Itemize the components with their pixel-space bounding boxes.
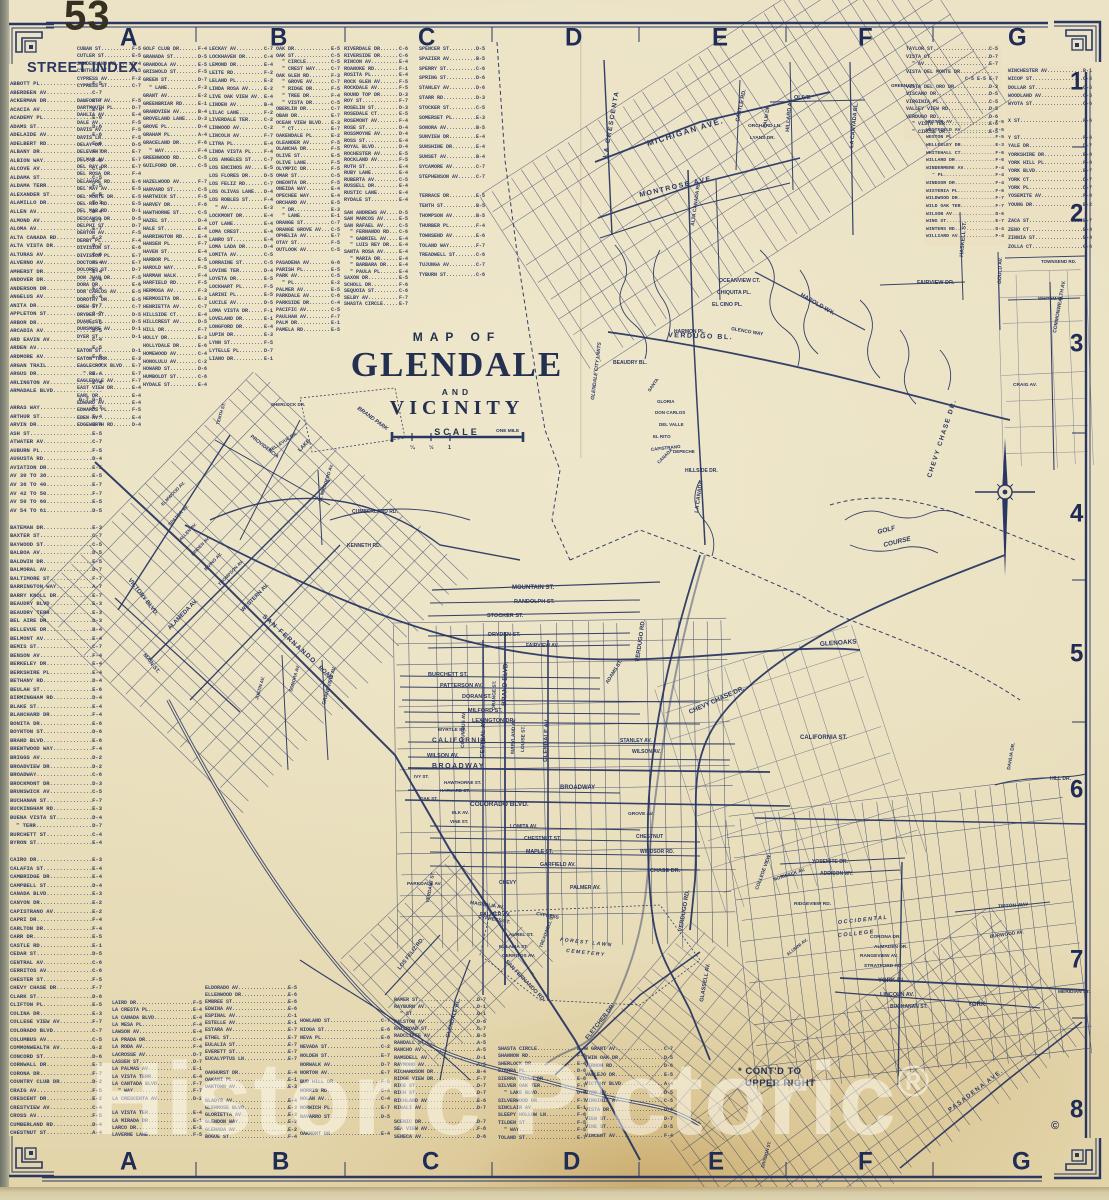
road (400, 687, 600, 689)
road (830, 498, 1075, 560)
street-label: FAIRVIEW AV. (526, 643, 559, 649)
index-entry: DESCANSO DR..........................D-5 (77, 216, 141, 223)
street-label: OLIVE (794, 95, 811, 101)
index-entry: LYNN ST..........................F-5 (209, 340, 273, 348)
street-label: CALIFORNIA (432, 737, 487, 744)
street-label: BEAUDRY BL. (613, 360, 648, 366)
index-entry: EDEN AV..........................E-4 (77, 415, 141, 422)
index-entry: BUENA VISTA ST..........................… (10, 814, 102, 823)
index-entry: HARMAN WALK..........................F-4 (143, 273, 207, 281)
index-entry: BRIGGS AV..........................D-2 (10, 754, 102, 763)
index-entry: HARBOR PL..........................E-5 (143, 257, 207, 265)
index-entry: WILLARD DR..........................F-6 (926, 158, 1004, 166)
index-entry: CRESTVIEW AV..........................C-… (10, 1104, 102, 1113)
street-label: GLORIA (657, 399, 675, 404)
index-entry: LAIRD DR..........................F-5 (112, 1000, 202, 1007)
index-entry: DOCTORS AV..........................E-7 (77, 260, 141, 267)
street-label: HILL DR. (1050, 776, 1072, 782)
index-entry: BRUNSWICK AV..........................C-… (10, 788, 102, 797)
index-entry: LINDEN AV..........................B-4 (209, 102, 273, 110)
index-entry: CHESTER ST..........................F-5 (10, 976, 102, 985)
street-label: GLENCO WAY (731, 326, 765, 338)
index-entry: DUNSMORE AV..........................D-1 (77, 326, 141, 333)
street-label: WILSON AV. (427, 753, 459, 759)
index-entry: CENTRAL AV..........................C-6 (10, 959, 102, 968)
index-entry: DENTON AV..........................F-5 (77, 230, 141, 237)
index-entry: AUBURN PL..........................F-5 (10, 447, 102, 456)
index-entry: DIVISION PL..........................E-7 (77, 253, 141, 260)
index-entry: HARTWICK ST..........................F-5 (143, 194, 207, 202)
index-entry: " CIRCLE..........................C-5 (276, 59, 340, 66)
scan-edge-bottom (0, 1187, 1109, 1200)
road (428, 633, 630, 636)
map-title-line3: AND (348, 387, 566, 397)
grid-letter-top-B: B (270, 23, 287, 52)
street-label: ALUMNI AV. (786, 937, 809, 957)
index-entry: AV 54 TO 61..........................D-5 (10, 507, 102, 516)
street-label: DORAN ST. (462, 694, 492, 700)
index-entry: OCEAN VIEW BLVD.........................… (276, 120, 340, 127)
index-entry: PAULHAN AV..........................F-7 (276, 314, 340, 321)
index-entry: HALE ST..........................E-4 (143, 226, 207, 234)
street-label: VERDUGO RD. (678, 889, 691, 932)
street-label: SANTA (647, 377, 660, 393)
street-index-title: STREET INDEX (27, 60, 139, 76)
index-entry: ORANGE GROVE AV.........................… (276, 227, 340, 234)
index-entry: EDWARD AV..........................E-4 (77, 400, 141, 407)
index-entry: TERRACE DR..........................E-5 (419, 193, 485, 203)
street-label: OAK ST. (420, 796, 438, 801)
grid-number-3: 3 (1070, 329, 1083, 358)
street-label: RANDOLPH ST. (514, 599, 555, 605)
index-entry: OAK GLEN RD..........................F-3 (276, 73, 340, 80)
index-entry: DREW ST..........................C-7 (77, 304, 141, 311)
index-entry: GREEN ST..........................D-7 (143, 77, 207, 85)
index-entry: SUNVIEW DR..........................E-4 (419, 134, 485, 144)
index-entry: CARLTON DR..........................F-4 (10, 925, 102, 934)
index-entry: " DR..........................E-3 (276, 207, 340, 214)
index-entry: WELLESLEY DR..........................E-… (926, 143, 1004, 151)
street-label: CHESTNUT (636, 834, 663, 840)
index-entry: SPRING ST..........................D-6 (419, 75, 485, 85)
index-entry: WESTFIELD AV..........................F-… (926, 128, 1004, 136)
street-label: IVY ST. (414, 774, 429, 779)
index-entry: C-5 E-5 E-7 (906, 76, 998, 84)
index-entry: BIRMINGHAM RD..........................D… (10, 694, 102, 703)
index-entry: CAIRO DR..........................E-3 (10, 856, 102, 865)
index-entry: GUILFORD DR..........................C-5 (143, 163, 207, 171)
index-entry: HAZELWOOD AV..........................F-… (143, 179, 207, 187)
index-entry: STOCKER ST..........................C-5 (419, 105, 485, 115)
index-entry: EDGEWORTH RD..........................D-… (77, 422, 141, 429)
scale-tick-label: ¼ (410, 444, 415, 451)
index-entry: " ST..........................D-1 (394, 1011, 486, 1018)
index-entry: BALTIMORE ST..........................F-… (10, 575, 102, 584)
index-entry: BROADWAY..........................C-6 (10, 771, 102, 780)
street-label: WINDSOR RD. (640, 849, 675, 855)
street-label: COLLEGE VIEW (754, 854, 772, 891)
index-entry: X ST..........................F-6 (1008, 118, 1092, 126)
index-entry: PACIFIC AV..........................C-5 (276, 307, 340, 314)
index-entry (419, 184, 485, 194)
street-label: ALMADEN DR. (874, 944, 908, 950)
index-entry: ELLENWOOD DR..........................E-… (205, 992, 297, 999)
index-entry: EAGLEDALE AV..........................F-… (77, 378, 141, 385)
atlas-page: MICHIGAN AVE.MONTROSE AVE.LA CRESCENTAVE… (0, 0, 1109, 1200)
index-entry: LA CANADA BLVD..........................… (112, 1015, 202, 1022)
index-entry: WESTON AV..........................F-5 (926, 120, 1004, 128)
index-entry: BONITA DR..........................E-6 (10, 720, 102, 729)
index-entry: HAVEN ST..........................E-4 (143, 249, 207, 257)
street-label: BURCHETT ST. (428, 672, 468, 678)
index-entry: ESTELLE AV..........................E-1 (205, 1020, 297, 1027)
corner-ornament-icon (8, 1136, 54, 1176)
index-entry: CROSS AV..........................F-5 (10, 1112, 102, 1121)
street-label: EL RITO (653, 434, 671, 439)
street-label: CHIQUITA PL. (717, 290, 752, 296)
scale-label: SCALE (348, 427, 566, 437)
street-label: GLENOAKS (820, 638, 858, 648)
index-entry: LA CRESTA PL..........................E-… (112, 1007, 202, 1014)
index-entry: BALBOA AV..........................D-5 (10, 549, 102, 558)
index-entry: LOCKMONT DR..........................E-4 (209, 213, 273, 221)
index-entry: LINDA VISTA PL..........................… (209, 149, 273, 157)
index-entry: HARVEY DR..........................F-6 (143, 202, 207, 210)
index-entry: LOVELAND DR..........................E-1 (209, 316, 273, 324)
street-label: YOSEMITE DR. (812, 859, 848, 865)
index-entry: CYPRESS ST..........................C-7 (77, 83, 141, 90)
index-entry: LOS FLORES DR..........................D… (209, 173, 273, 181)
index-entry: BRAND BLVD..........................E-6 (10, 737, 102, 746)
index-entry: BERKELEY DR..........................E-4 (10, 660, 102, 669)
street-label: SAN FERNANDO (261, 613, 318, 665)
index-entry: CEDAR ST..........................D-5 (10, 950, 102, 959)
index-entry: OLANCHA DR..........................F-5 (276, 146, 340, 153)
street-label: CUMBERLAND RD. (352, 509, 398, 515)
street-label: HAROLD WY. (799, 293, 835, 317)
index-entry: LOS FELIZ RD..........................C-… (209, 181, 273, 189)
street-label: ELK AV. (452, 810, 469, 815)
street-label: BROADWAY (560, 785, 595, 791)
index-entry: COLORADO BLVD..........................C… (10, 1027, 102, 1036)
index-entry: ORANGE ST..........................C-7 (276, 220, 340, 227)
index-entry: AV 42 TO 50..........................F-7 (10, 490, 102, 499)
index-entry: EAGLE ROCK BLVD.........................… (77, 363, 141, 370)
index-entry: LOS ROBLES ST..........................F… (209, 197, 273, 205)
index-entry: CORNWALL DR..........................E-3 (10, 1061, 102, 1070)
index-entry: HUMBOLDT ST..........................C-6 (143, 374, 207, 382)
index-entry: VISCANO DR..........................D-5 (906, 91, 998, 99)
index-entry: BLANCHARD DR..........................F-… (10, 711, 102, 720)
index-entry: DELMAR AV..........................E-7 (77, 157, 141, 164)
index-entry (276, 253, 340, 260)
index-entry: PALMER AV..........................E-5 (276, 287, 340, 294)
road (1050, 282, 1054, 470)
index-entry: " RIDGE DR..........................F-5 (276, 86, 340, 93)
index-entry: STARR RD..........................D-3 (419, 95, 485, 105)
index-entry: BEAUDRY TERR..........................E-… (10, 609, 102, 618)
index-entry: YALE DR..........................D-7 (1008, 143, 1092, 151)
street-label: HARMON PL. (674, 329, 706, 335)
index-entry: HAWTHORNE ST..........................C-… (143, 210, 207, 218)
index-entry: LOYETA DR..........................E-5 (209, 276, 273, 284)
index-entry: ASH ST..........................E-5 (10, 430, 102, 439)
index-entry: OBAN DR..........................E-7 (276, 113, 340, 120)
street-label: LEXINGTON DR. (472, 718, 515, 724)
index-entry: DOLORES ST..........................D-7 (77, 267, 141, 274)
grid-number-1: 1 (1070, 67, 1083, 96)
index-entry: CAPRI DR..........................F-4 (10, 916, 102, 925)
street-label: ELMWOOD AV. (160, 480, 186, 506)
index-entry: YORK PL..........................D-7 (1008, 185, 1092, 193)
index-column-8: WESTON AV..........................F-5WE… (926, 120, 1004, 242)
index-entry: CARR DR..........................E-5 (10, 933, 102, 942)
index-entry: LIANO DR..........................E-1 (209, 356, 273, 364)
street-label: YORK BL. (878, 978, 907, 984)
index-entry: BETHANY RD..........................D-4 (10, 677, 102, 686)
index-entry: GRANADA ST..........................D-5 (143, 54, 207, 62)
index-entry: LONGFORD DR..........................E-4 (209, 324, 273, 332)
index-entry: LEMOND DR..........................E-4 (209, 62, 273, 70)
index-entry: ELDORADO AV..........................E-5 (205, 985, 297, 992)
index-entry: SUNSET AV..........................B-4 (419, 154, 485, 164)
index-entry: WILLIARD AV..........................F-4 (926, 234, 1004, 242)
index-entry: VISTA DEL ORO DR........................… (906, 84, 998, 92)
index-entry: BAYWOOD ST..........................C-5 (10, 541, 102, 550)
index-entry: HARVARD ST..........................C-5 (143, 187, 207, 195)
street-label: MILFORD ST. (468, 708, 503, 714)
index-entry: HOMEWOOD AV..........................C-4 (143, 351, 207, 359)
index-entry: CUMBERLAND RD..........................D… (10, 1121, 102, 1130)
index-entry: HAROLD WAY..........................F-5 (143, 265, 207, 273)
index-entry: LOCKHAVEN DR..........................C-… (209, 54, 273, 62)
registered-icon: ® (897, 1057, 930, 1106)
index-entry: GROVE PL..........................D-4 (143, 124, 207, 132)
street-label: SHERLOCK DR. (271, 402, 305, 407)
index-entry: HONOLULU AV..........................C-2 (143, 359, 207, 367)
index-entry: DAVIS AV..........................F-5 (77, 127, 141, 134)
index-entry: HOLLYDALE DR..........................E-… (143, 343, 207, 351)
index-column-2: GOLF CLUB DR..........................F-… (143, 46, 207, 390)
street-label: DEL VALLE (659, 422, 684, 427)
index-entry: LOVINE TER..........................D-4 (209, 268, 273, 276)
street-label: STRATFORD RD. (864, 963, 903, 969)
index-entry: LANRO ST..........................E-4 (209, 237, 273, 245)
street-label: CHASE DR. (650, 868, 681, 874)
street-label: GLASSELL AV. (699, 963, 712, 1003)
index-entry: SYCAMORE AV..........................C-7 (419, 164, 485, 174)
index-entry: TENTH ST..........................B-5 (419, 203, 485, 213)
index-entry: COLINA DR..........................E-3 (10, 1010, 102, 1019)
street-label: ORANGE ST. (491, 681, 498, 711)
street-label: MAPLE ST. (526, 849, 554, 855)
index-entry: SONORA AV..........................B-5 (419, 125, 485, 135)
index-entry: GROVELAND LANE..........................… (143, 116, 207, 124)
road (318, 470, 322, 545)
index-entry: RALSTON AV..........................D-6 (394, 1019, 486, 1026)
index-entry: " GROVE AV..........................C-7 (276, 79, 340, 86)
index-entry: VISTA DEL MONTE DR......................… (906, 69, 998, 77)
index-entry: COLUMBUS AV..........................C-5 (10, 1036, 102, 1045)
street-label: BUCHANAN ST. (890, 1004, 928, 1010)
index-entry: OLYMPIC DR..........................F-5 (276, 166, 340, 173)
street-label: OCEANVIEW CT. (719, 278, 761, 284)
grid-letter-top-G: G (1008, 23, 1027, 52)
index-entry: BEMIS ST..........................C-7 (10, 643, 102, 652)
grid-letter-top-F: F (858, 23, 873, 52)
index-entry: DELAWARE RD..........................E-6 (77, 179, 141, 186)
grid-number-6: 6 (1070, 775, 1083, 804)
index-entry: LYTELLE PL..........................D-7 (209, 348, 273, 356)
index-entry: OAKENDALE PL..........................E-… (276, 133, 340, 140)
index-entry: PAMELA RD..........................E-5 (276, 327, 340, 334)
index-entry: LARINI PL..........................E-5 (209, 292, 273, 300)
index-entry: GREENWOOD RD..........................C-… (143, 155, 207, 163)
index-entry: YORKSHIRE DR..........................E-… (1008, 152, 1092, 160)
index-entry: PARK AV..........................C-5 (276, 273, 340, 280)
index-entry: EARL DR..........................E-4 (77, 393, 141, 400)
index-entry: DORA DR..........................E-6 (77, 282, 141, 289)
index-entry: TUJUNGA AV..........................C-7 (419, 262, 485, 272)
street-label: RANGEVIEW AV. (860, 953, 898, 959)
index-entry: STEPHENSON AV..........................C… (419, 174, 485, 184)
index-entry: LOCKHART PL..........................F-5 (209, 284, 273, 292)
index-entry: BARRINGTON WAY..........................… (10, 583, 102, 592)
index-entry: RAMER ST..........................D-7 (394, 997, 486, 1004)
watermark-text: Historic Pictoric (90, 1041, 897, 1156)
index-entry: LOMA LADA DR..........................D-… (209, 244, 273, 252)
index-entry: BEULAH ST..........................E-6 (10, 686, 102, 695)
index-entry: OLIVE LANE..........................F-5 (276, 160, 340, 167)
index-entry: DYER ST..........................D-1 (77, 334, 141, 341)
index-entry: YORK HILL PL..........................F-… (1008, 160, 1092, 168)
road (653, 250, 670, 342)
index-entry: OPECHEE WAY..........................E-4 (276, 193, 340, 200)
index-entry: WILDWOOD DR..........................F-7 (926, 196, 1004, 204)
index-entry: BELMONT AV..........................E-4 (10, 635, 102, 644)
index-entry: LA MESA PL..........................F-4 (112, 1022, 202, 1029)
street-label: ALTA CANADA RD (690, 182, 702, 227)
index-entry: CANYON DR..........................E-2 (10, 899, 102, 908)
map-title-line1: MAP OF (348, 330, 566, 344)
index-entry: SOMERSET PL..........................E-3 (419, 115, 485, 125)
index-entry: ONEONTA DR..........................F-5 (276, 180, 340, 187)
index-entry: " AV..........................E-7 (906, 61, 998, 69)
street-label: LAUREL ST. (506, 932, 534, 938)
index-entry: VALLEY VIEW RD..........................… (906, 106, 998, 114)
index-entry: DARTMOUTH PL..........................D-… (77, 105, 141, 112)
index-entry: BROADVIEW DR..........................D-… (10, 763, 102, 772)
street-label: GROVE AV. (628, 811, 654, 817)
index-entry: CAPISTRANO AV..........................E… (10, 908, 102, 917)
index-entry: GRAHAM PL..........................A-4 (143, 132, 207, 140)
index-entry: SUNSHINE DR..........................E-4 (419, 144, 485, 154)
index-entry: CAMBRIDGE DR..........................E-… (10, 873, 102, 882)
index-entry: LOMA CREST..........................E-4 (209, 229, 273, 237)
street-label: KENNETH RD. (347, 543, 382, 549)
index-entry: OLEANDER AV..........................F-5 (276, 140, 340, 147)
index-entry: " TERR..........................D-7 (10, 822, 102, 831)
road (940, 350, 951, 390)
index-entry: DEL MAR RD..........................D-1 (77, 208, 141, 215)
index-entry: EMBREE ST..........................E-6 (205, 999, 297, 1006)
map-title-block: MAP OF GLENDALE AND VICINITY SCALE (348, 330, 566, 437)
street-label: CERRITOS AV. (502, 953, 535, 959)
street-label: TIPTON WAY (998, 902, 1030, 910)
index-entry: OBERLIN DR..........................C-7 (276, 106, 340, 113)
index-entry: TREADWELL ST..........................C-… (419, 252, 485, 262)
index-entry: CORONA DR..........................F-7 (10, 1070, 102, 1079)
index-entry: HOWARD ST..........................D-6 (143, 366, 207, 374)
index-entry: RAILROAD ST..........................C-7 (394, 1026, 486, 1033)
index-entry: " PL..........................F-4 (926, 173, 1004, 181)
index-entry: " WAY..........................F-4 (143, 148, 207, 156)
street-label: EULALIA ST. (499, 944, 528, 950)
index-entry: PASADENA AV..........................G-8 (276, 260, 340, 267)
index-entry: WINTERS RD..........................D-4 (926, 227, 1004, 235)
street-label: FOREST LAWN (560, 937, 613, 948)
index-entry: " VISTA DR..........................C-5 (276, 100, 340, 107)
street-label: CHEVY (499, 880, 517, 886)
index-entry: " LANE..........................F-3 (143, 85, 207, 93)
index-entry: AUGUSTA RD..........................D-4 (10, 455, 102, 464)
index-column-1: CUBAN ST..........................F-5CUT… (77, 46, 141, 430)
street-label: PALMER AV. (570, 885, 601, 891)
index-entry: BENSON AV..........................F-4 (10, 652, 102, 661)
index-entry: HERMOSA AV..........................F-3 (143, 288, 207, 296)
index-entry: THURBER PL..........................F-4 (419, 223, 485, 233)
index-entry: HANSEN PL..........................F-7 (143, 241, 207, 249)
index-column-3: LECKAY AV..........................C-7LO… (209, 46, 273, 364)
index-entry: CYPRESS AV..........................F-2 (77, 76, 141, 83)
index-entry: LOS OLIVAS LANE.........................… (209, 189, 273, 197)
index-entry: WISTERIA PL..........................F-6 (926, 189, 1004, 197)
index-entry: DRYDEN ST..........................D-5 (77, 312, 141, 319)
index-entry (77, 341, 141, 348)
index-entry: STANLEY AV..........................D-6 (419, 85, 485, 95)
index-entry: GOLF CLUB DR..........................F-… (143, 46, 207, 54)
index-entry: DEL MAY AV..........................E-5 (77, 186, 141, 193)
index-entry: HOWLAND ST..........................C-7 (300, 1018, 390, 1027)
index-entry: ESTARA AV..........................E-7 (205, 1027, 297, 1034)
corner-ornament-icon (8, 24, 54, 64)
index-entry: BARRY KNOLL DR..........................… (10, 592, 102, 601)
index-entry: WYOTA ST..........................C-6 (1008, 101, 1092, 109)
index-entry: LOS ENCINOS AV..........................… (209, 165, 273, 173)
index-entry: DALE AV..........................F-5 (77, 120, 141, 127)
street-label: HAWTHORNE ST. (444, 780, 481, 785)
index-entry: HYDALE ST..........................E-4 (143, 382, 207, 390)
index-entry: CLARK ST..........................D-6 (10, 993, 102, 1002)
index-entry: OMAR ST..........................C-5 (276, 173, 340, 180)
street-label: VERDANT ST. (425, 871, 436, 903)
index-entry: WILD OAK TER..........................F-… (926, 204, 1004, 212)
index-entry: LORRAINE ST..........................C-5 (209, 260, 273, 268)
index-entry: VIRGINIA PL..........................C-5 (906, 99, 998, 107)
street-label: GARFIELD AV. (540, 862, 576, 868)
index-entry: HAZEL ST..........................D-4 (143, 218, 207, 226)
index-entry: DEL RIO RD..........................E-5 (77, 201, 141, 208)
index-entry: LIVERDALE TER..........................C… (209, 117, 273, 125)
index-entry: ZINNIA ST..........................E-8 (1008, 235, 1092, 243)
index-entry: CAMPBELL ST..........................D-4 (10, 882, 102, 891)
index-entry: AV 36 TO 40..........................E-7 (10, 481, 102, 490)
index-entry: BEAUDRY BLVD..........................E-… (10, 600, 102, 609)
index-entry (143, 171, 207, 179)
index-entry: TAYLOR ST..........................C-5 (906, 46, 998, 54)
street-label: COMMONWEALTH AV. (1052, 279, 1067, 333)
index-entry: BROCKMONT DR..........................D-… (10, 780, 102, 789)
